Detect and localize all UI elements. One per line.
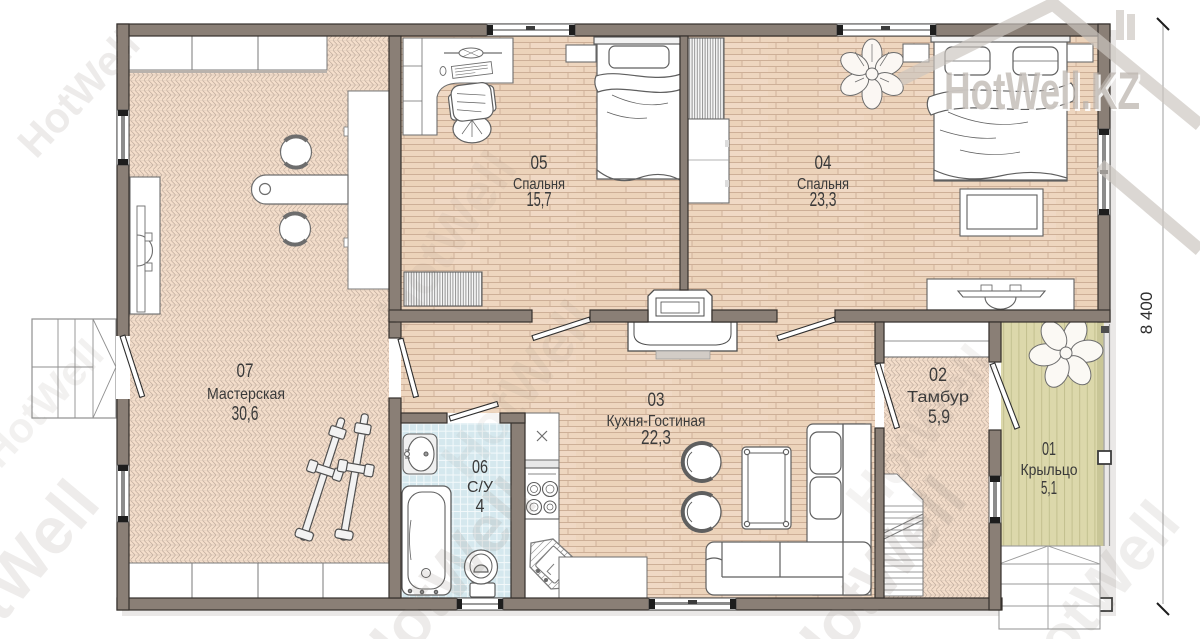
svg-text:01: 01 xyxy=(1042,439,1056,459)
svg-text:04: 04 xyxy=(815,153,832,174)
svg-text:HotWell.KZ: HotWell.KZ xyxy=(944,62,1140,121)
svg-text:22,3: 22,3 xyxy=(641,427,671,449)
svg-text:15,7: 15,7 xyxy=(527,189,552,211)
svg-text:03: 03 xyxy=(648,390,665,411)
svg-text:5,1: 5,1 xyxy=(1041,478,1057,498)
svg-text:Мастерская: Мастерская xyxy=(207,386,285,403)
svg-text:30,6: 30,6 xyxy=(232,403,259,425)
svg-text:05: 05 xyxy=(531,153,548,174)
svg-text:23,3: 23,3 xyxy=(810,189,837,211)
svg-text:Крыльцо: Крыльцо xyxy=(1021,462,1078,479)
svg-text:07: 07 xyxy=(237,361,254,382)
svg-text:8 400: 8 400 xyxy=(1137,292,1156,335)
